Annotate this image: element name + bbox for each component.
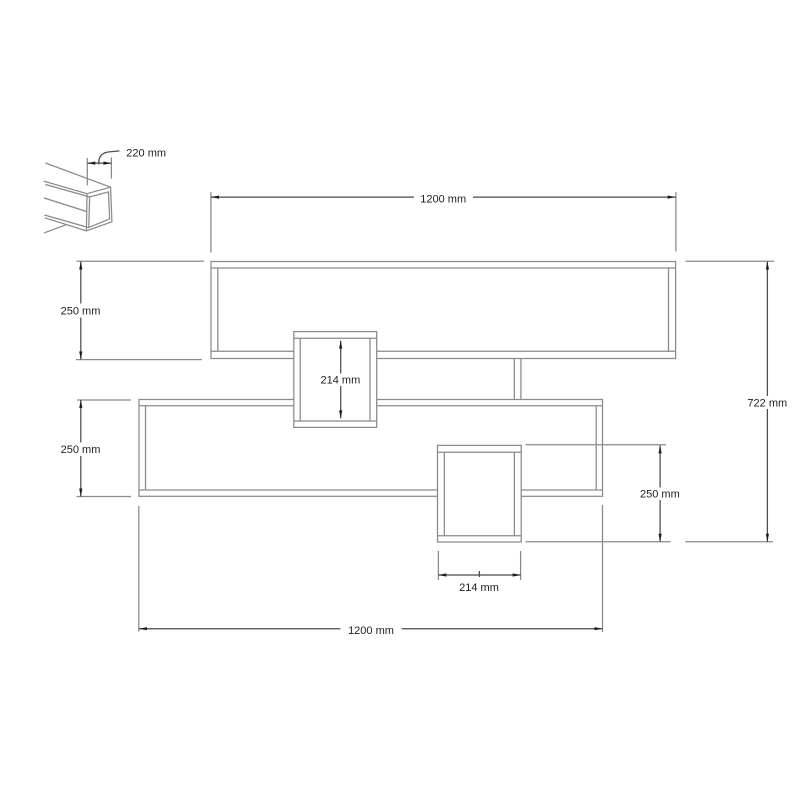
svg-text:250 mm: 250 mm <box>61 444 101 456</box>
svg-text:1200 mm: 1200 mm <box>348 625 394 637</box>
svg-text:250 mm: 250 mm <box>61 305 101 317</box>
svg-text:214 mm: 214 mm <box>459 582 499 594</box>
svg-text:220 mm: 220 mm <box>126 148 166 160</box>
svg-text:722 mm: 722 mm <box>747 397 787 409</box>
svg-text:250 mm: 250 mm <box>640 489 680 501</box>
svg-text:1200 mm: 1200 mm <box>420 193 466 205</box>
svg-text:214 mm: 214 mm <box>321 375 361 387</box>
